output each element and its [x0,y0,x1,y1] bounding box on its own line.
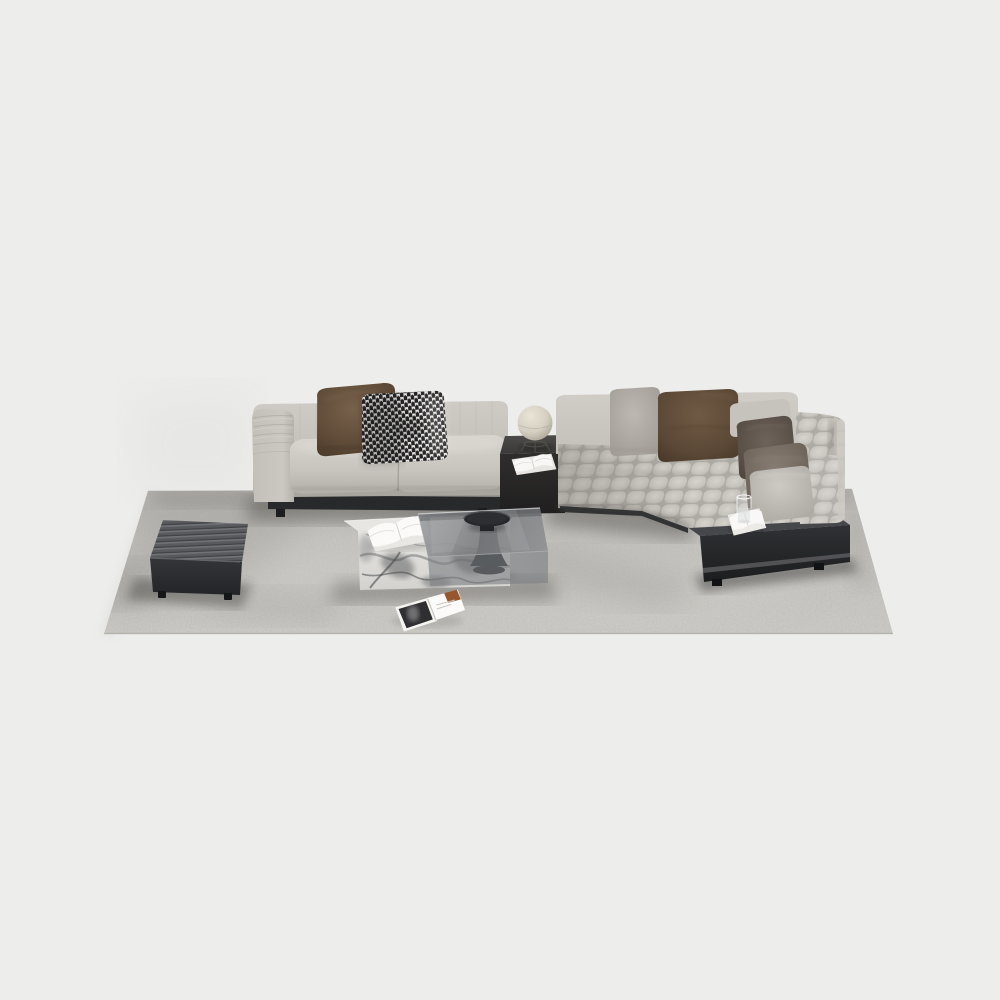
glass-body [737,497,751,522]
pedestal-tabletop-inner [467,513,507,525]
sofa-foot [276,509,285,517]
coffee-table [344,508,548,590]
lamp-sphere [518,406,553,441]
pillow-brown-right [658,389,740,462]
ottoman-foot [158,591,166,598]
sofa-left-arm [252,409,294,502]
shade [394,418,422,438]
water-glass [737,495,751,523]
pillow-gray [610,387,662,456]
shade [150,520,248,562]
wall-soft-shadow [130,388,255,492]
glass-base [738,520,751,524]
ottoman-foot [224,593,232,600]
sofa-foot [814,563,824,570]
ottoman-front [150,558,242,595]
sofa-left-plinth [268,495,506,511]
leather-ottoman [150,520,248,600]
living-room-render [0,0,1000,1000]
pedestal-table-top [464,512,510,533]
pillow-houndstooth [362,391,448,464]
sofa-foot [712,579,722,586]
